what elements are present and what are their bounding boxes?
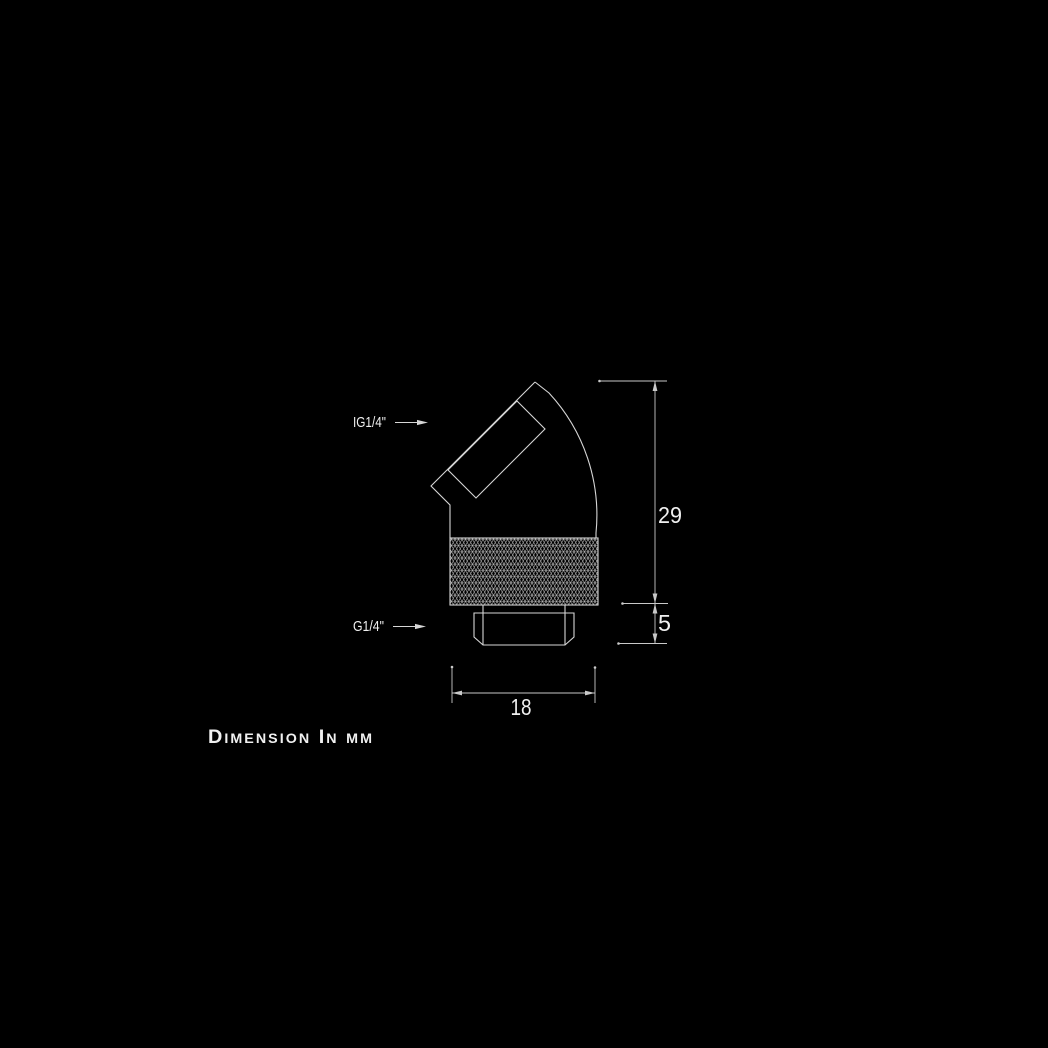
dim-text-body-width: 18 <box>511 694 532 720</box>
dim-text-thread-height: 5 <box>658 610 671 636</box>
arrow-up-icon <box>653 381 658 391</box>
inlet-thread-label: IG1/4" <box>353 415 386 431</box>
ext-line-tick <box>621 602 624 605</box>
thread-section-outline <box>474 613 574 645</box>
arrow-up-icon <box>653 604 658 614</box>
angled-port-bore-outline <box>448 401 545 498</box>
arrow-down-icon <box>653 594 658 604</box>
fitting-outline <box>431 382 598 645</box>
ext-line-tick <box>598 380 601 383</box>
ext-line-tick <box>594 666 597 669</box>
arrow-left-icon <box>452 691 462 696</box>
technical-drawing-page: IG1/4" G1/4" 29 5 18 Dimension In mm <box>0 0 1048 1048</box>
knurl-section <box>450 538 598 605</box>
dim-text-body-height: 29 <box>658 502 682 528</box>
thread-minor-lines <box>483 605 565 645</box>
ext-line-tick <box>617 642 620 645</box>
arrow-right-icon <box>417 420 428 425</box>
label-leaders <box>393 420 428 629</box>
footer-note: Dimension In mm <box>208 726 374 748</box>
angled-port-outer-right-edge <box>535 382 597 538</box>
arrow-right-icon <box>415 624 426 629</box>
outlet-thread-label: G1/4" <box>353 619 384 635</box>
technical-drawing-canvas: IG1/4" G1/4" 29 5 18 Dimension In mm <box>0 0 1048 1048</box>
arrow-right-icon <box>585 691 595 696</box>
ext-line-tick <box>451 666 454 669</box>
arrow-down-icon <box>653 634 658 644</box>
angled-port-outer-left-edge <box>431 382 535 538</box>
